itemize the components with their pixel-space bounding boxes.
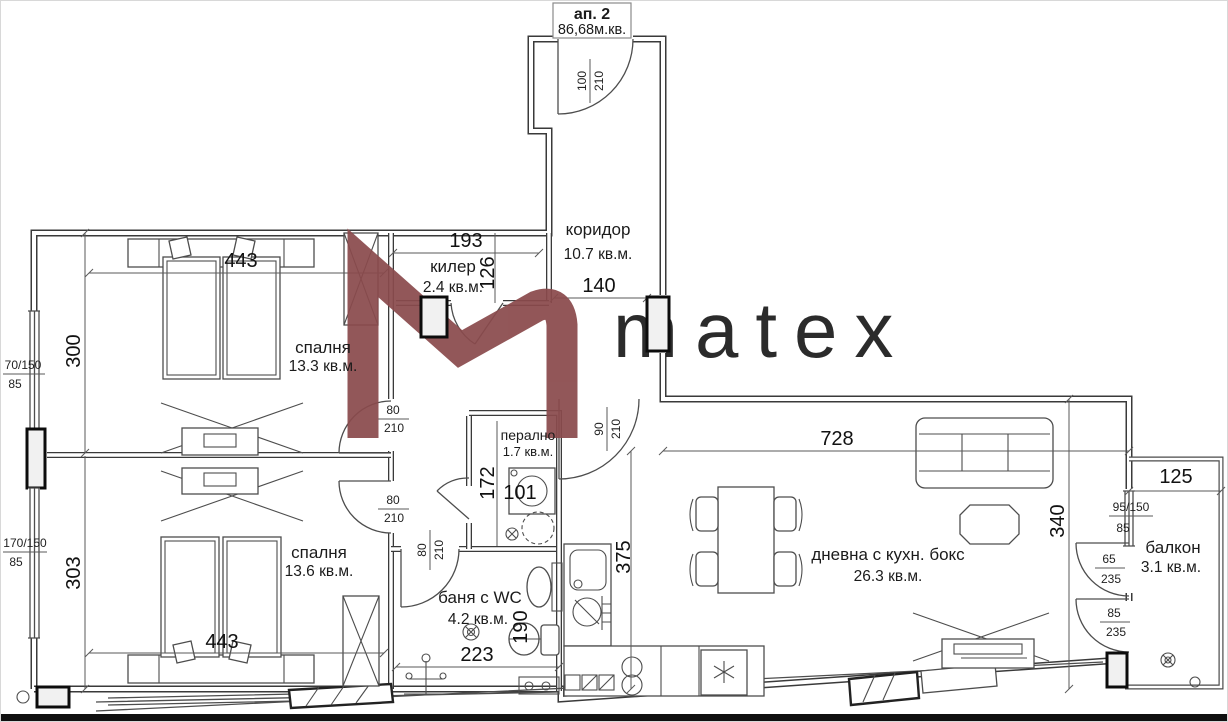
svg-text:210: 210 xyxy=(609,419,623,439)
apartment-total-area: 86,68м.кв. xyxy=(558,22,626,38)
headboard-shelf xyxy=(128,239,314,267)
laundry-door-swing xyxy=(437,478,469,519)
coffee-table xyxy=(960,505,1019,544)
svg-text:235: 235 xyxy=(1106,625,1126,639)
sofa xyxy=(916,418,1053,488)
apartment-title-box: ап. 2 86,68м.кв. xyxy=(553,3,631,38)
bath-sink xyxy=(527,567,551,607)
dim-balcony-door-left: 65 235 xyxy=(1101,552,1121,586)
floor-plan: matex ап. 2 86,68м.кв. коридор 10.7 кв.м… xyxy=(0,0,1228,722)
window-pier xyxy=(27,429,45,488)
room-area-balcony: 3.1 кв.м. xyxy=(1141,559,1201,576)
pillow xyxy=(173,641,195,663)
room-area-bedroom2: 13.6 кв.м. xyxy=(285,563,354,580)
column xyxy=(421,297,447,337)
room-label-bathroom: баня с WC xyxy=(438,588,522,607)
svg-text:85: 85 xyxy=(1116,521,1130,535)
room-area-corridor: 10.7 кв.м. xyxy=(564,246,633,263)
window-balcony xyxy=(1123,489,1135,548)
dim-closet-depth: 126 xyxy=(477,256,499,289)
room-label-closet: килер xyxy=(430,257,476,276)
dim-living-width: 728 xyxy=(820,428,853,450)
terrace-post xyxy=(17,691,29,703)
room-area-bathroom: 4.2 кв.м. xyxy=(448,611,508,628)
bedroom2-door-swing xyxy=(339,481,391,533)
dim-bedroom2-depth: 303 xyxy=(63,556,85,589)
dim-kitchen-wall: 375 xyxy=(613,540,635,573)
room-area-closet: 2.4 кв.м. xyxy=(423,279,483,296)
pillow xyxy=(169,237,191,259)
dim-bath-width: 223 xyxy=(460,644,493,666)
floor-plan-svg: matex ап. 2 86,68м.кв. коридор 10.7 кв.м… xyxy=(1,1,1228,722)
svg-text:210: 210 xyxy=(432,540,446,560)
toilet-tank xyxy=(541,625,559,655)
column xyxy=(647,297,669,351)
svg-text:85: 85 xyxy=(9,555,23,569)
dresser-tv xyxy=(182,468,258,494)
dining-table xyxy=(718,487,774,593)
room-label-corridor: коридор xyxy=(566,220,631,239)
room-label-balcony: балкон xyxy=(1145,538,1200,557)
dim-laundry-depth: 172 xyxy=(477,466,499,499)
room-area-laundry: 1.7 кв.м. xyxy=(503,444,553,459)
dim-bedroom2-width: 443 xyxy=(205,631,238,653)
svg-text:100: 100 xyxy=(575,71,589,91)
room-area-living: 26.3 кв.м. xyxy=(854,568,923,585)
room-label-living: дневна с кухн. бокс xyxy=(811,545,965,564)
svg-text:80: 80 xyxy=(415,543,429,557)
dim-entry-door: 100 210 xyxy=(575,59,606,103)
room-area-bedroom1: 13.3 кв.м. xyxy=(289,358,358,375)
water-heater xyxy=(522,512,554,544)
bed xyxy=(163,257,220,379)
svg-text:85: 85 xyxy=(8,377,22,391)
dim-balcony-width: 125 xyxy=(1159,466,1192,488)
svg-text:90: 90 xyxy=(592,422,606,436)
svg-text:80: 80 xyxy=(386,493,400,507)
window-left-bottom xyxy=(28,488,40,638)
bottom-bar xyxy=(1,714,1228,722)
living-furniture xyxy=(690,418,1053,668)
room-label-bedroom2: спалня xyxy=(291,543,347,562)
balcony-door-left-swing xyxy=(1076,543,1129,596)
svg-text:65: 65 xyxy=(1102,552,1116,566)
drain-icon xyxy=(1161,653,1175,667)
drain-icon xyxy=(506,528,518,540)
svg-text:210: 210 xyxy=(384,511,404,525)
dim-corridor-width: 140 xyxy=(582,275,615,297)
dim-bath-depth: 190 xyxy=(510,610,532,643)
svg-text:170/150: 170/150 xyxy=(3,536,47,550)
dim-laundry-width: 101 xyxy=(503,482,536,504)
svg-text:85: 85 xyxy=(1107,606,1121,620)
kitchen-counter xyxy=(564,544,611,646)
balcony-fixtures xyxy=(1161,653,1200,687)
footboard-shelf xyxy=(128,655,314,683)
svg-text:80: 80 xyxy=(386,403,400,417)
dim-closet-width: 193 xyxy=(449,230,482,252)
svg-text:70/150: 70/150 xyxy=(5,358,42,372)
svg-text:210: 210 xyxy=(592,71,606,91)
dim-living-door: 90 210 xyxy=(592,407,623,451)
svg-text:235: 235 xyxy=(1101,572,1121,586)
apartment-unit: ап. 2 xyxy=(574,6,610,23)
svg-text:95/150: 95/150 xyxy=(1113,500,1150,514)
dim-bathroom-door: 80 210 xyxy=(415,530,446,570)
dresser-tv xyxy=(182,428,258,455)
column xyxy=(1107,653,1127,687)
svg-text:210: 210 xyxy=(384,421,404,435)
dim-bedroom1-width: 443 xyxy=(224,250,257,272)
column xyxy=(37,687,69,707)
dim-living-depth: 340 xyxy=(1047,504,1069,537)
bed xyxy=(223,257,280,379)
room-label-bedroom1: спалня xyxy=(295,338,351,357)
dim-bedroom1-depth: 300 xyxy=(63,334,85,367)
laundry-fixtures xyxy=(506,468,555,544)
room-label-laundry: перално xyxy=(501,427,556,443)
